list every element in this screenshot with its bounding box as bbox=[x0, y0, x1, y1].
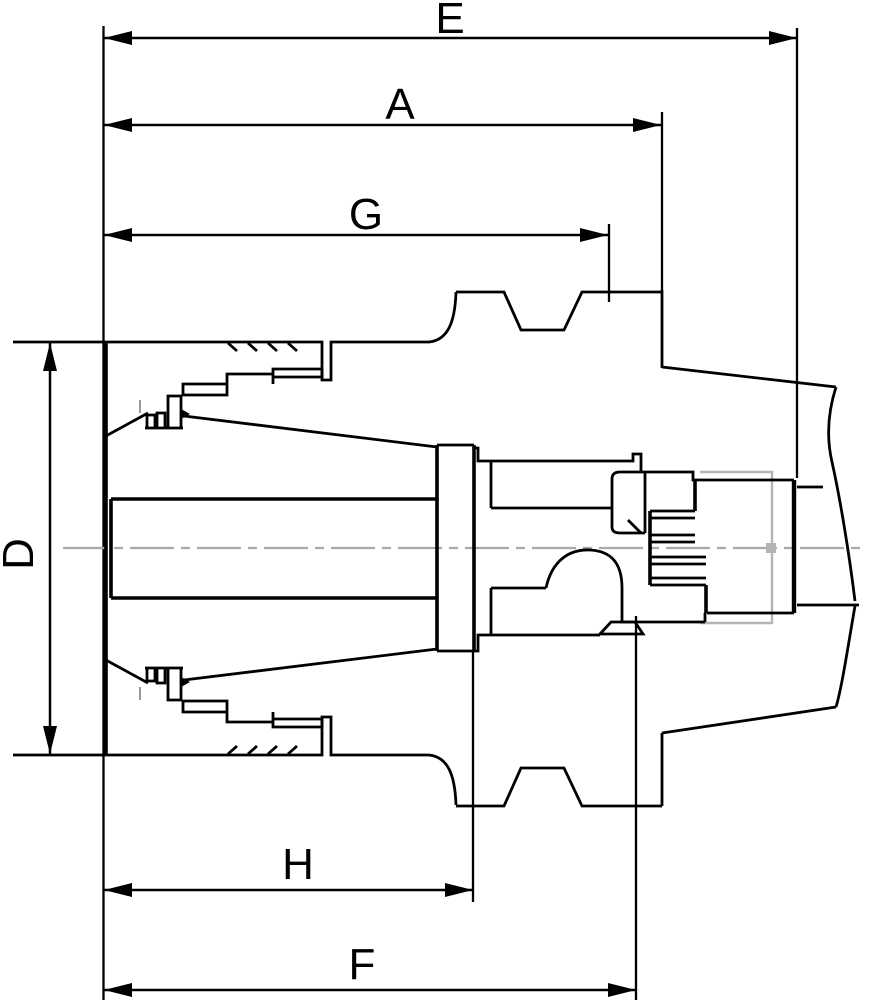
arrowhead-h-right bbox=[445, 883, 473, 897]
dimension-h: H bbox=[104, 840, 473, 897]
stud-front-flange bbox=[612, 472, 645, 533]
stud-flange-chamfer bbox=[628, 520, 641, 533]
gripper-verticals bbox=[695, 480, 706, 613]
arrowhead-f-left bbox=[104, 983, 132, 997]
neck-bore-top bbox=[491, 461, 612, 508]
taper-shank-and-spindle bbox=[662, 367, 859, 733]
collet-detail-top bbox=[104, 369, 437, 447]
dimension-a: A bbox=[104, 80, 661, 132]
arrowhead-d-top bbox=[43, 343, 57, 371]
flange-top-v-groove bbox=[456, 292, 661, 330]
arrowhead-e-left bbox=[104, 31, 132, 45]
nut-thread-steps-bottom bbox=[183, 701, 322, 727]
neck-top-contour bbox=[474, 448, 641, 472]
dim-label-d: D bbox=[0, 538, 43, 570]
knurl-ticks-bottom bbox=[228, 746, 297, 754]
collet-detail-bottom bbox=[104, 649, 437, 727]
centerline-group bbox=[63, 543, 862, 553]
taper-line-top bbox=[662, 367, 836, 387]
collet-front-chamfer-top bbox=[104, 413, 148, 437]
arrowhead-a-left bbox=[104, 118, 132, 132]
collet-taper-bottom bbox=[184, 649, 437, 680]
arrowhead-g-right bbox=[580, 228, 608, 242]
nut-top-contour bbox=[13, 292, 456, 380]
collet-groove-teeth-bottom bbox=[145, 668, 183, 700]
neck-bore-bottom bbox=[491, 588, 546, 635]
dimension-d: D bbox=[0, 343, 57, 754]
shank-neck bbox=[474, 448, 705, 651]
spindle-break-line-top bbox=[829, 387, 855, 601]
technical-drawing: E A G D H F bbox=[0, 0, 870, 1000]
collet-groove-teeth-top bbox=[145, 396, 183, 428]
arrowhead-a-right bbox=[633, 118, 661, 132]
taper-line-bottom bbox=[662, 707, 836, 733]
arrowhead-f-right bbox=[608, 983, 636, 997]
neck-bottom-contour bbox=[474, 635, 600, 651]
arrowhead-e-right bbox=[769, 31, 797, 45]
dim-label-e: E bbox=[435, 0, 464, 43]
stud-head-bottom bbox=[705, 613, 794, 622]
arrowhead-h-left bbox=[104, 883, 132, 897]
nut-thread-steps-top bbox=[183, 369, 322, 395]
dim-label-h: H bbox=[282, 840, 314, 889]
dimension-e: E bbox=[104, 0, 797, 45]
arrowhead-g-left bbox=[104, 228, 132, 242]
dimension-g: G bbox=[104, 190, 608, 242]
dim-label-a: A bbox=[385, 80, 415, 129]
dimension-f: F bbox=[104, 940, 636, 997]
flange-bottom-v-groove bbox=[456, 768, 662, 806]
knurl-ticks-top bbox=[228, 343, 297, 351]
dim-label-g: G bbox=[349, 190, 383, 239]
nut-bottom-contour bbox=[13, 717, 456, 805]
spindle-break-line-bottom bbox=[836, 606, 855, 707]
arrowhead-d-bottom bbox=[43, 726, 57, 754]
extension-lines bbox=[104, 26, 798, 1000]
collet-taper-top bbox=[184, 416, 437, 447]
collet-front-chamfer-bottom bbox=[104, 659, 148, 683]
dim-label-f: F bbox=[349, 940, 376, 989]
drawing-canvas: E A G D H F bbox=[0, 0, 870, 1000]
